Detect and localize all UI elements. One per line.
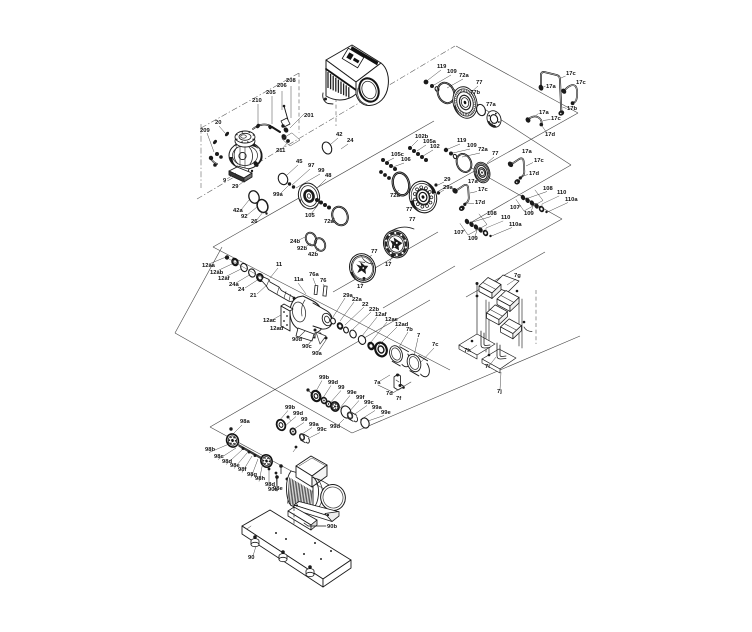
svg-text:109: 109 (468, 236, 478, 242)
svg-text:99a: 99a (273, 192, 283, 198)
svg-text:77: 77 (371, 249, 377, 255)
svg-text:11: 11 (276, 262, 283, 268)
svg-text:72a: 72a (478, 147, 488, 153)
svg-text:22: 22 (362, 302, 368, 308)
svg-text:110a: 110a (509, 222, 522, 228)
svg-text:7f: 7f (396, 396, 401, 402)
svg-text:90a: 90a (312, 351, 322, 357)
svg-text:17d: 17d (475, 200, 485, 206)
svg-text:77: 77 (476, 80, 482, 86)
svg-text:17c: 17c (478, 187, 488, 193)
svg-text:90b: 90b (327, 524, 337, 530)
svg-text:98a: 98a (240, 419, 250, 425)
svg-text:12ac: 12ac (263, 318, 277, 324)
svg-text:7h: 7h (464, 348, 471, 354)
svg-text:99d: 99d (328, 380, 338, 386)
svg-text:22a: 22a (352, 297, 362, 303)
svg-text:110: 110 (501, 215, 510, 221)
svg-text:17d: 17d (545, 132, 555, 138)
svg-text:42b: 42b (308, 252, 318, 258)
svg-text:17a: 17a (522, 149, 532, 155)
svg-text:90a: 90a (268, 487, 278, 493)
svg-text:109: 109 (447, 69, 457, 75)
svg-text:7d: 7d (386, 391, 393, 397)
svg-text:45: 45 (296, 159, 303, 165)
svg-text:210: 210 (252, 98, 262, 104)
svg-text:209: 209 (200, 128, 210, 134)
svg-text:99: 99 (301, 417, 308, 423)
svg-text:108: 108 (543, 186, 553, 192)
svg-text:29: 29 (444, 177, 451, 183)
svg-text:90c: 90c (302, 344, 312, 350)
svg-text:7b: 7b (406, 327, 413, 333)
svg-text:109: 109 (467, 143, 477, 149)
svg-text:29a: 29a (443, 185, 453, 191)
svg-text:99c: 99c (317, 427, 327, 433)
svg-text:76: 76 (320, 278, 327, 284)
svg-text:17c: 17c (534, 158, 544, 164)
svg-text:17c: 17c (576, 80, 586, 86)
svg-text:17c: 17c (566, 71, 576, 77)
svg-text:17: 17 (385, 262, 391, 268)
svg-text:97: 97 (308, 163, 314, 169)
svg-text:17c: 17c (551, 116, 561, 122)
svg-text:24: 24 (238, 287, 245, 293)
svg-text:7c: 7c (432, 342, 439, 348)
svg-text:99: 99 (338, 385, 345, 391)
svg-text:102: 102 (430, 144, 440, 150)
svg-text:205: 205 (266, 90, 276, 96)
svg-text:90d: 90d (292, 337, 302, 343)
svg-text:72a: 72a (459, 73, 469, 79)
svg-text:77: 77 (409, 217, 415, 223)
svg-text:119: 119 (437, 64, 447, 70)
svg-text:17a: 17a (468, 179, 478, 185)
svg-text:29: 29 (232, 184, 239, 190)
svg-text:110: 110 (557, 190, 566, 196)
svg-text:77: 77 (406, 207, 412, 213)
svg-text:17b: 17b (567, 106, 577, 112)
svg-text:90: 90 (248, 555, 254, 561)
svg-text:7j: 7j (497, 389, 502, 395)
svg-text:42: 42 (336, 132, 342, 138)
svg-text:108: 108 (487, 211, 497, 217)
svg-text:208: 208 (286, 78, 296, 84)
svg-text:201: 201 (304, 113, 314, 119)
svg-text:21: 21 (250, 293, 257, 299)
svg-text:11a: 11a (294, 277, 304, 283)
svg-text:99e: 99e (381, 410, 391, 416)
svg-text:7i: 7i (485, 364, 490, 370)
svg-text:12af: 12af (218, 276, 230, 282)
svg-text:12aa: 12aa (202, 263, 216, 269)
svg-text:17a: 17a (539, 110, 549, 116)
svg-text:110a: 110a (565, 197, 578, 203)
svg-text:119: 119 (457, 138, 467, 144)
svg-text:7: 7 (417, 333, 420, 339)
svg-text:77b: 77b (470, 90, 480, 96)
svg-text:98h: 98h (255, 476, 265, 482)
svg-text:106: 106 (401, 157, 411, 163)
svg-text:77: 77 (492, 151, 498, 157)
svg-text:105: 105 (305, 213, 315, 219)
svg-text:76a: 76a (309, 272, 319, 278)
svg-text:48: 48 (325, 173, 332, 179)
svg-text:17a: 17a (546, 84, 556, 90)
svg-text:92: 92 (241, 214, 247, 220)
svg-text:17: 17 (357, 284, 363, 290)
svg-text:109: 109 (524, 211, 534, 217)
svg-text:77a: 77a (486, 102, 496, 108)
svg-text:99d: 99d (330, 424, 340, 430)
svg-text:24: 24 (347, 138, 354, 144)
svg-text:211: 211 (276, 148, 286, 154)
svg-text:7g: 7g (514, 273, 521, 279)
svg-text:20: 20 (215, 120, 221, 126)
svg-text:17d: 17d (529, 171, 539, 177)
